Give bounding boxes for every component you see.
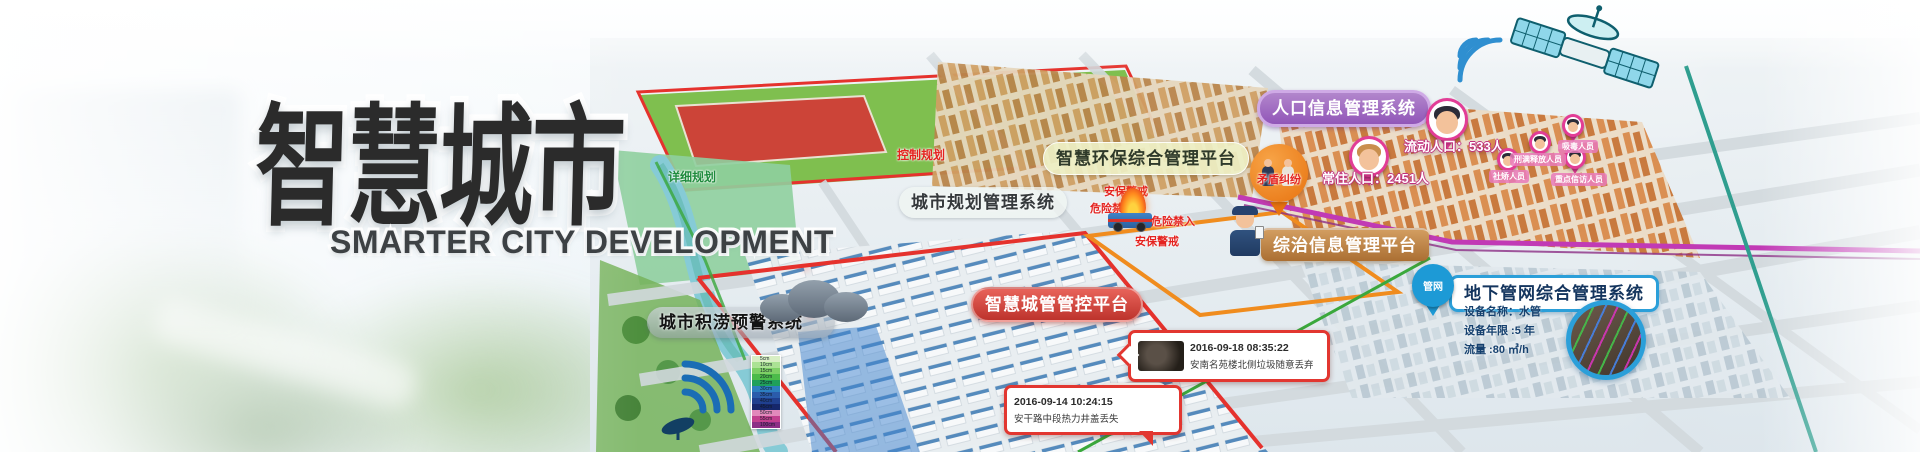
annotation-control-plan: 控制规划 [897, 146, 945, 163]
incident-callout: 2016-09-14 10:24:15 安干路中段热力井盖丢失 [1004, 385, 1182, 435]
person-pin-icon [1562, 114, 1584, 142]
smart-city-banner: 智慧城市 SMARTER CITY DEVELOPMENT 智慧环保综合管理平台… [0, 0, 1920, 452]
page-subtitle: SMARTER CITY DEVELOPMENT [330, 224, 834, 261]
pipe-device-age: 设备年限 :5 年 [1464, 322, 1541, 341]
pipe-pin-label: 管网 [1412, 264, 1454, 307]
pipe-inset-photo [1566, 300, 1646, 380]
floating-population-text: 流动人口：533人 [1404, 136, 1504, 155]
flood-legend: 5cm10cm15cm20cm25cm30cm35cm40cm45cm50cm5… [751, 355, 781, 429]
annotation-dispute: 矛盾纠纷 [1257, 171, 1301, 187]
incident-description: 安干路中段热力井盖丢失 [1014, 411, 1119, 425]
police-officer-icon [1228, 206, 1262, 260]
flood-legend-row: 100cm [752, 422, 780, 428]
pipe-info-panel: 设备名称：水管 设备年限 :5 年 流量 :80 ㎥/h [1464, 303, 1541, 360]
label-environment-system: 智慧环保综合管理平台 [1043, 142, 1249, 175]
incident-time: 2016-09-18 08:35:22 [1190, 342, 1314, 354]
annotation-security-bottom: 安保警戒 [1135, 233, 1179, 249]
incident-time: 2016-09-14 10:24:15 [1014, 396, 1119, 408]
pipe-device-name: 设备名称：水管 [1464, 303, 1541, 322]
garbage-photo [1138, 341, 1184, 371]
population-tag: 吸毒人员 [1558, 140, 1598, 153]
rain-cloud-icon [760, 276, 868, 326]
incident-description: 安南名苑楼北侧垃圾随意丢弃 [1190, 357, 1314, 371]
population-tag: 重点信访人员 [1551, 173, 1607, 186]
annotation-detail-plan: 详细规划 [668, 168, 716, 185]
pipe-network-pin-icon: 管网 [1412, 264, 1454, 316]
annotation-danger-right: 危险禁入 [1151, 213, 1195, 229]
label-city-management-system: 智慧城管管控平台 [971, 287, 1143, 322]
label-population-system: 人口信息管理系统 [1257, 90, 1431, 127]
pipe-flow: 流量 :80 ㎥/h [1464, 341, 1541, 360]
wireless-signal-icon [648, 338, 768, 452]
label-planning-system: 城市规划管理系统 [899, 187, 1067, 218]
population-tag: 社矫人员 [1489, 170, 1529, 183]
fire-truck-icon [1108, 213, 1152, 228]
incident-callout: 2016-09-18 08:35:22 安南名苑楼北侧垃圾随意丢弃 [1128, 330, 1330, 382]
label-governance-system: 综治信息管理平台 [1261, 228, 1429, 261]
right-white-fade [1760, 0, 1920, 452]
population-tag: 刑满释放人员 [1510, 153, 1566, 166]
resident-population-text: 常住人口：2451人 [1322, 168, 1429, 187]
alarm-icon [806, 268, 819, 284]
